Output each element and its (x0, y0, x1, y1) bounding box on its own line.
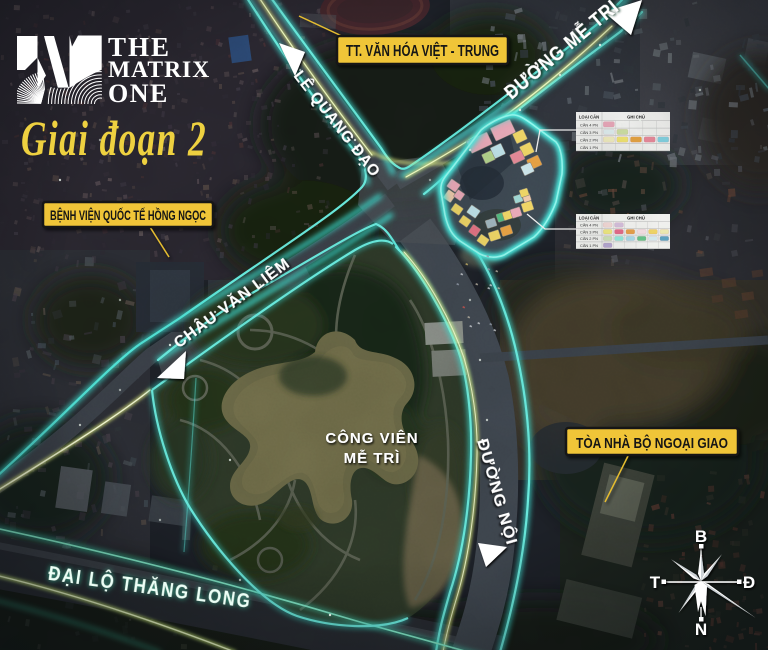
svg-text:Giai đoạn 2: Giai đoạn 2 (21, 110, 207, 166)
svg-text:N: N (695, 620, 707, 639)
svg-text:ONE: ONE (108, 79, 169, 108)
svg-text:MỄ TRÌ: MỄ TRÌ (344, 450, 401, 467)
svg-text:BỆNH VIỆN QUỐC TẾ HỒNG NGỌC: BỆNH VIỆN QUỐC TẾ HỒNG NGỌC (50, 208, 206, 223)
svg-text:TÒA NHÀ BỘ NGOẠI GIAO: TÒA NHÀ BỘ NGOẠI GIAO (576, 434, 728, 452)
svg-text:TT. VĂN HÓA VIỆT - TRUNG: TT. VĂN HÓA VIỆT - TRUNG (346, 41, 499, 60)
svg-text:CÔNG VIÊN: CÔNG VIÊN (325, 429, 418, 447)
svg-text:T: T (650, 573, 661, 592)
svg-text:B: B (695, 527, 707, 546)
svg-text:Đ: Đ (743, 573, 755, 592)
